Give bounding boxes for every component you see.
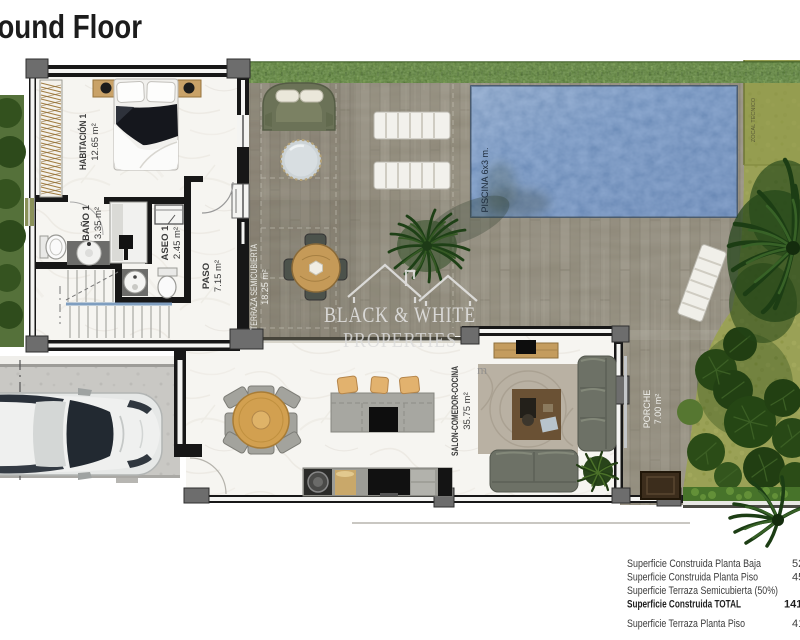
svg-text:Superficie Terraza Semicubiert: Superficie Terraza Semicubierta (50%) — [627, 585, 778, 597]
svg-text:35.75 m²: 35.75 m² — [462, 392, 473, 430]
svg-text:Superficie Terraza Planta Piso: Superficie Terraza Planta Piso — [627, 618, 745, 630]
svg-text:7.00 m²: 7.00 m² — [653, 394, 663, 425]
svg-text:Ground Floor: Ground Floor — [0, 8, 142, 45]
svg-text:HABITACIÓN 1: HABITACIÓN 1 — [77, 113, 89, 170]
svg-text:PORCHE: PORCHE — [642, 390, 652, 429]
svg-text:PISCINA 6x3 m.: PISCINA 6x3 m. — [480, 147, 490, 212]
svg-text:Superficie Construida Planta B: Superficie Construida Planta Baja — [627, 558, 762, 570]
svg-text:ZOCAL TECNICO: ZOCAL TECNICO — [751, 97, 757, 142]
svg-text:12.65 m²: 12.65 m² — [90, 123, 101, 161]
svg-text:45,65: 45,65 — [792, 572, 800, 584]
svg-text:ASEO 1: ASEO 1 — [160, 225, 171, 261]
svg-text:SALON-COMEDOR-COCINA: SALON-COMEDOR-COCINA — [450, 366, 461, 456]
svg-text:18.25 m²: 18.25 m² — [260, 269, 270, 305]
svg-text:Superficie Construida Planta P: Superficie Construida Planta Piso — [627, 572, 758, 584]
svg-text:7.15 m²: 7.15 m² — [213, 260, 224, 292]
svg-text:TERRAZA SEMICUBIERTA: TERRAZA SEMICUBIERTA — [249, 244, 259, 330]
svg-text:52,85: 52,85 — [792, 558, 800, 570]
svg-text:3.35 m²: 3.35 m² — [93, 207, 104, 239]
svg-text:141,9: 141,9 — [784, 599, 800, 611]
svg-text:PASO: PASO — [201, 263, 212, 289]
svg-text:BLACK & WHITE: BLACK & WHITE — [324, 302, 476, 327]
svg-text:PROPERTIES: PROPERTIES — [343, 328, 457, 352]
svg-text:m: m — [477, 362, 487, 377]
svg-text:Superficie Construida TOTAL: Superficie Construida TOTAL — [627, 599, 741, 611]
svg-text:2.45 m²: 2.45 m² — [172, 227, 183, 259]
svg-text:BAÑO 1: BAÑO 1 — [81, 204, 92, 241]
svg-text:41,75: 41,75 — [792, 618, 800, 630]
